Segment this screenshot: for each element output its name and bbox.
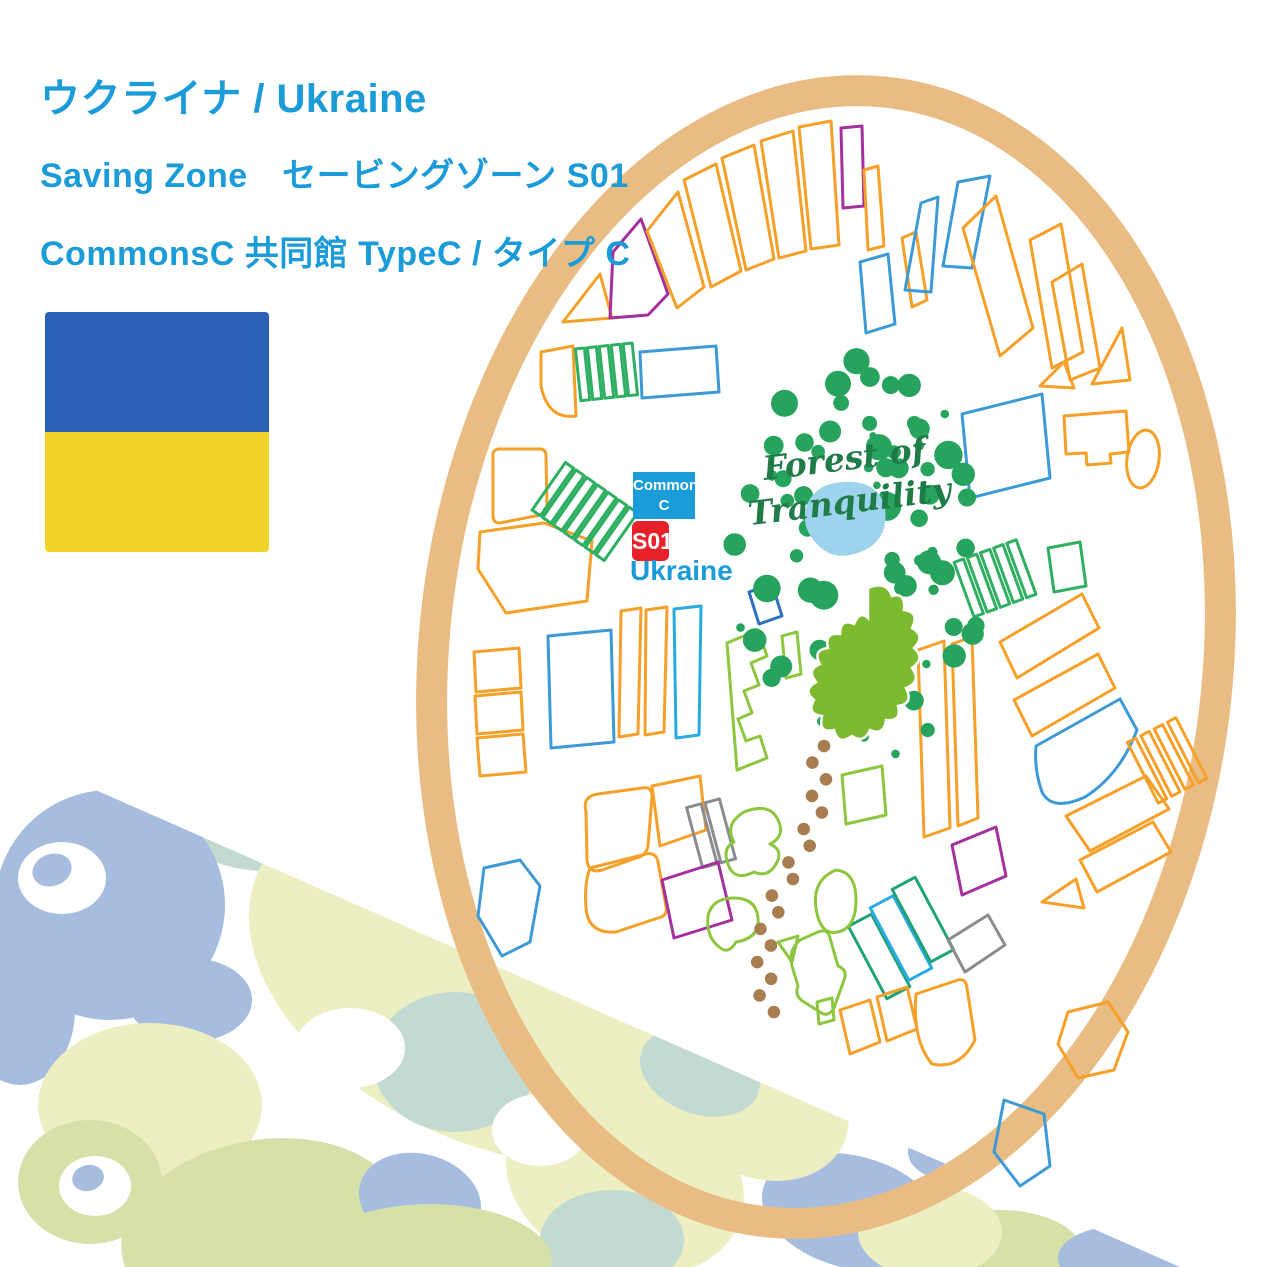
commons-c-label: Commons C — [633, 472, 695, 519]
commons-label-line1: Commons — [633, 476, 695, 496]
flag-yellow-band — [45, 432, 269, 552]
zone-subtitle: Saving Zone セービングゾーン S01 — [40, 148, 629, 197]
pavilions-right-cluster — [954, 394, 1207, 908]
country-label: Ukraine — [630, 555, 733, 587]
flag-blue-band — [45, 312, 269, 432]
commons-label-line2: C — [633, 496, 695, 516]
page-title: ウクライナ / Ukraine — [40, 66, 427, 124]
expo-flyer: ウクライナ / Ukraine Saving Zone セービングゾーン S01… — [0, 0, 1267, 1267]
path-dots — [751, 740, 832, 1019]
building-subtitle: CommonsC 共同館 TypeC / タイプ C — [40, 226, 630, 275]
ukraine-flag — [45, 312, 269, 552]
